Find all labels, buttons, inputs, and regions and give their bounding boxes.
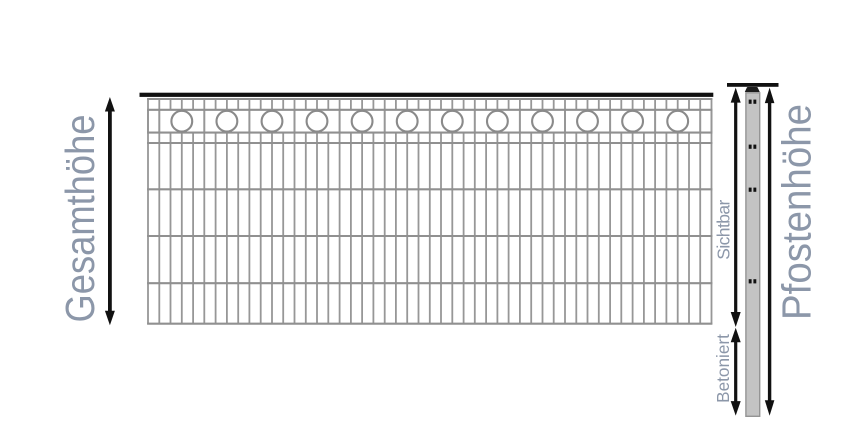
svg-text:Betoniert: Betoniert — [713, 334, 733, 403]
svg-text:Gesamthöhe: Gesamthöhe — [57, 115, 103, 323]
svg-text:Pfostenhöhe: Pfostenhöhe — [774, 104, 820, 320]
svg-text:Sichtbar: Sichtbar — [714, 200, 734, 260]
